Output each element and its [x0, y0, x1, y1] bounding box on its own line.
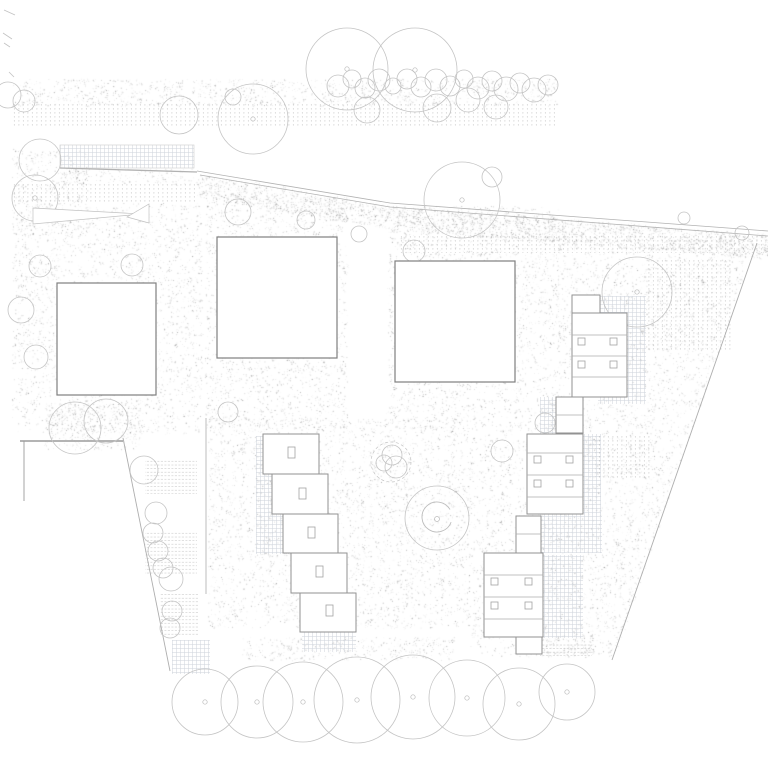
- cluster-house-block: [572, 295, 600, 313]
- spiral-mound-center-dot: [435, 517, 440, 522]
- large-square-building: [217, 237, 337, 358]
- tree-canopy-circle: [373, 28, 457, 112]
- terrace-house-roof-opening: [308, 527, 315, 538]
- cluster-house-roof-opening: [610, 338, 617, 345]
- road-edge-line: [60, 168, 197, 172]
- tree-trunk-dot: [565, 690, 569, 694]
- tree-trunk-dot: [345, 67, 349, 71]
- large-square-building: [395, 261, 515, 382]
- house-cluster: [556, 295, 627, 433]
- tree-canopy-circle: [24, 345, 48, 369]
- tree-canopy-circle: [218, 402, 238, 422]
- tree-canopy-circle: [29, 255, 51, 277]
- grid-texture-patch: [540, 513, 602, 553]
- tree-canopy-circle: [49, 402, 101, 454]
- tree-trunk-dot: [355, 698, 359, 702]
- hlines-texture-patch: [145, 460, 197, 494]
- boundary-tick-mark: [4, 10, 15, 15]
- tree-canopy-circle: [225, 199, 251, 225]
- shrub-group-outline: [371, 442, 411, 482]
- cluster-house-roof-opening: [491, 602, 498, 609]
- boundary-tick-mark: [3, 33, 12, 39]
- cluster-house-roof-opening: [566, 480, 573, 487]
- tree-trunk-dot: [411, 695, 415, 699]
- terrace-house-roof-opening: [288, 447, 295, 458]
- cluster-house-block: [516, 516, 541, 553]
- dots-texture-patch: [12, 104, 558, 127]
- cluster-house-roof-opening: [525, 602, 532, 609]
- tree-trunk-dot: [301, 700, 305, 704]
- spiral-mound-outer-circle: [405, 486, 469, 550]
- dots-texture-patch: [645, 258, 733, 350]
- tree-trunk-dot: [255, 700, 259, 704]
- dots-texture-patch: [12, 183, 195, 204]
- tree-canopy-circle: [678, 212, 690, 224]
- grid-texture-patch: [60, 145, 194, 168]
- dots-texture-patch: [400, 236, 768, 253]
- cluster-house-block: [484, 553, 543, 637]
- cluster-house-block: [572, 313, 627, 397]
- boundary-tick-mark: [9, 72, 14, 77]
- tree-canopy-circle: [19, 139, 61, 181]
- terrace-house-roof-opening: [326, 605, 333, 616]
- tree-canopy-circle: [225, 89, 241, 105]
- tree-canopy-circle: [371, 655, 455, 739]
- tree-canopy-circle: [172, 669, 238, 735]
- road-edge-line: [200, 175, 768, 236]
- cluster-house-roof-opening: [578, 338, 585, 345]
- site-plan: [0, 0, 768, 768]
- tree-canopy-circle: [121, 254, 143, 276]
- cluster-house-roof-opening: [566, 456, 573, 463]
- tree-canopy-circle: [306, 28, 388, 110]
- tree-canopy-circle: [385, 78, 401, 94]
- site-plan-drawing: [0, 0, 768, 768]
- tree-canopy-circle: [297, 211, 315, 229]
- tree-canopy-circle: [539, 664, 595, 720]
- tree-canopy-circle: [424, 162, 500, 238]
- grid-texture-patch: [302, 632, 356, 652]
- shrub-circle: [376, 455, 392, 471]
- tree-canopy-circle: [84, 399, 128, 443]
- terrace-house-roof-opening: [316, 566, 323, 577]
- tree-canopy-circle: [327, 75, 349, 97]
- tree-canopy-circle: [522, 78, 546, 102]
- tree-trunk-dot: [465, 696, 469, 700]
- boundary-tick-mark: [4, 43, 10, 47]
- tree-canopy-circle: [351, 226, 367, 242]
- wedge-path-mark: [33, 208, 142, 224]
- tree-canopy-circle: [429, 660, 505, 736]
- tree-canopy-circle: [483, 668, 555, 740]
- terrace-house-roof-opening: [299, 488, 306, 499]
- tree-canopy-circle: [343, 70, 361, 88]
- tree-canopy-circle: [221, 666, 293, 738]
- cluster-house-roof-opening: [534, 456, 541, 463]
- tree-trunk-dot: [413, 68, 417, 72]
- cluster-house-roof-opening: [610, 361, 617, 368]
- tree-canopy-circle: [482, 71, 502, 91]
- tree-canopy-circle: [145, 502, 167, 524]
- cluster-house-roof-opening: [525, 578, 532, 585]
- tree-canopy-circle: [455, 70, 473, 88]
- house-cluster: [484, 553, 543, 654]
- shrub-circle: [385, 456, 407, 478]
- tree-canopy-circle: [263, 662, 343, 742]
- buildings-layer: [57, 237, 627, 654]
- spiral-mound-inner-arc: [422, 502, 451, 532]
- cluster-house-block: [516, 637, 542, 654]
- cluster-house-roof-opening: [534, 480, 541, 487]
- cluster-house-roof-opening: [491, 578, 498, 585]
- tree-trunk-dot: [517, 702, 521, 706]
- tree-canopy-circle: [491, 440, 513, 462]
- dots-texture-patch: [595, 435, 650, 480]
- tree-canopy-circle: [8, 297, 34, 323]
- tree-canopy-circle: [510, 73, 530, 93]
- cluster-house-roof-opening: [578, 361, 585, 368]
- hlines-texture-patch: [540, 642, 592, 656]
- tree-trunk-dot: [460, 198, 464, 202]
- hlines-texture-patch: [160, 594, 198, 637]
- tree-trunk-dot: [635, 290, 639, 294]
- tree-trunk-dot: [203, 700, 207, 704]
- grid-texture-patch: [543, 555, 583, 638]
- cluster-house-block: [527, 434, 583, 514]
- large-square-building: [57, 283, 156, 395]
- tree-canopy-circle: [538, 75, 558, 95]
